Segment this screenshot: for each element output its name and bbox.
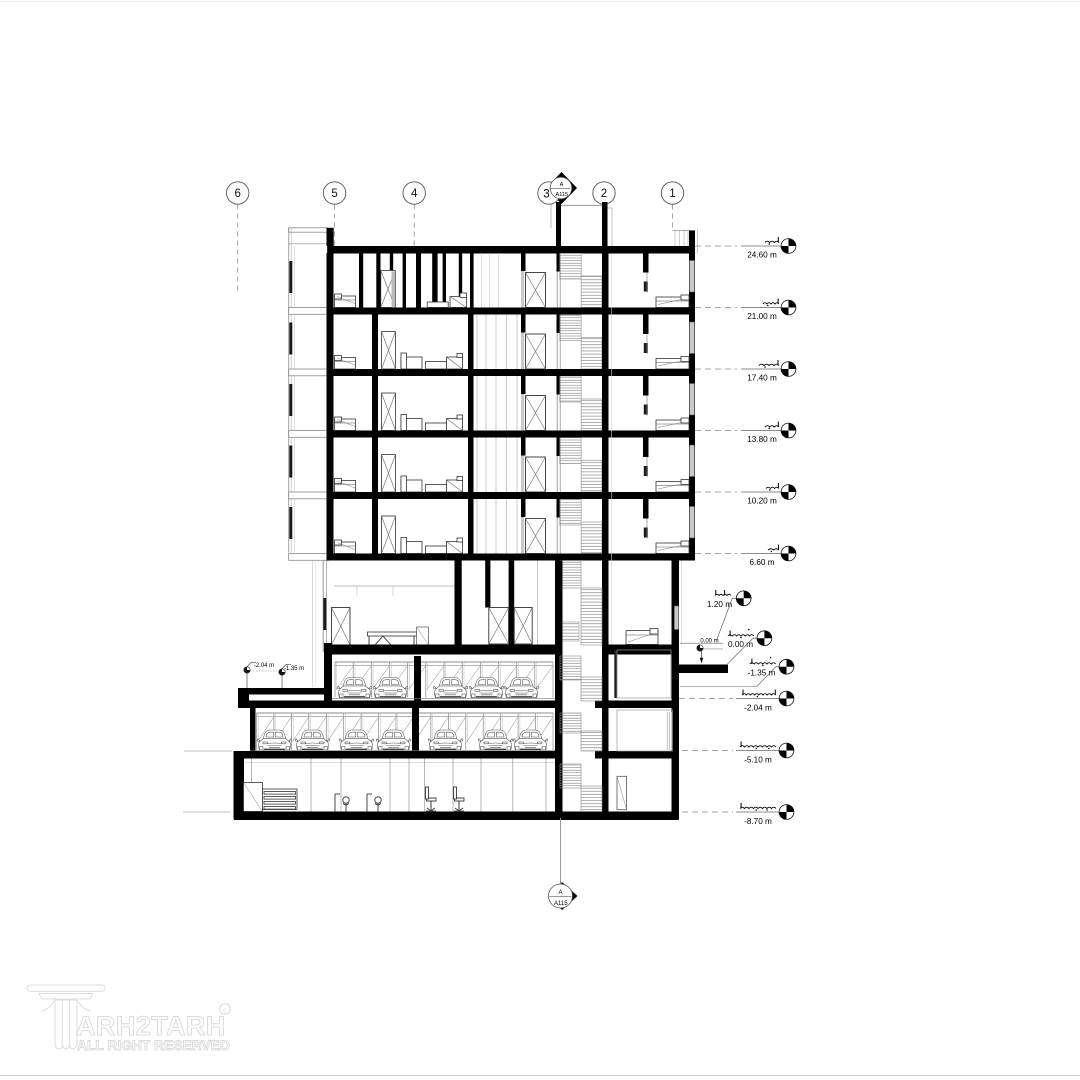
svg-text:4: 4 — [411, 188, 418, 200]
svg-text:ALL RIGHT RESERVED: ALL RIGHT RESERVED — [77, 1038, 230, 1053]
svg-text:-1.35 m: -1.35 m — [284, 666, 304, 672]
svg-text:1: 1 — [669, 188, 675, 200]
svg-text:6: 6 — [234, 188, 240, 200]
svg-text:2: 2 — [601, 188, 607, 200]
svg-text:ARH2TARH: ARH2TARH — [76, 1011, 226, 1041]
svg-text:5: 5 — [331, 188, 337, 200]
svg-text:-8.70 m: -8.70 m — [744, 817, 772, 826]
svg-text:6.60 m: 6.60 m — [749, 558, 774, 567]
svg-text:0.00 m: 0.00 m — [700, 639, 718, 645]
svg-text:-5.10 m: -5.10 m — [744, 756, 772, 765]
svg-text:13.80 m: 13.80 m — [747, 435, 777, 444]
svg-text:10.20 m: 10.20 m — [747, 497, 777, 506]
svg-text:-1.35 m: -1.35 m — [748, 669, 776, 678]
svg-text:A: A — [560, 182, 564, 188]
svg-text:3: 3 — [543, 189, 549, 201]
svg-text:A115: A115 — [554, 901, 568, 907]
svg-text:-2.04 m: -2.04 m — [744, 704, 772, 713]
svg-text:A: A — [558, 890, 562, 896]
svg-text:-2.04 m: -2.04 m — [254, 663, 274, 669]
svg-text:A115: A115 — [555, 192, 568, 198]
svg-text:1.20 m: 1.20 m — [707, 600, 732, 609]
svg-text:21.00 m: 21.00 m — [747, 312, 777, 321]
svg-text:24.60 m: 24.60 m — [747, 251, 777, 260]
svg-text:17.40 m: 17.40 m — [747, 374, 777, 383]
svg-text:c: c — [223, 1005, 227, 1014]
